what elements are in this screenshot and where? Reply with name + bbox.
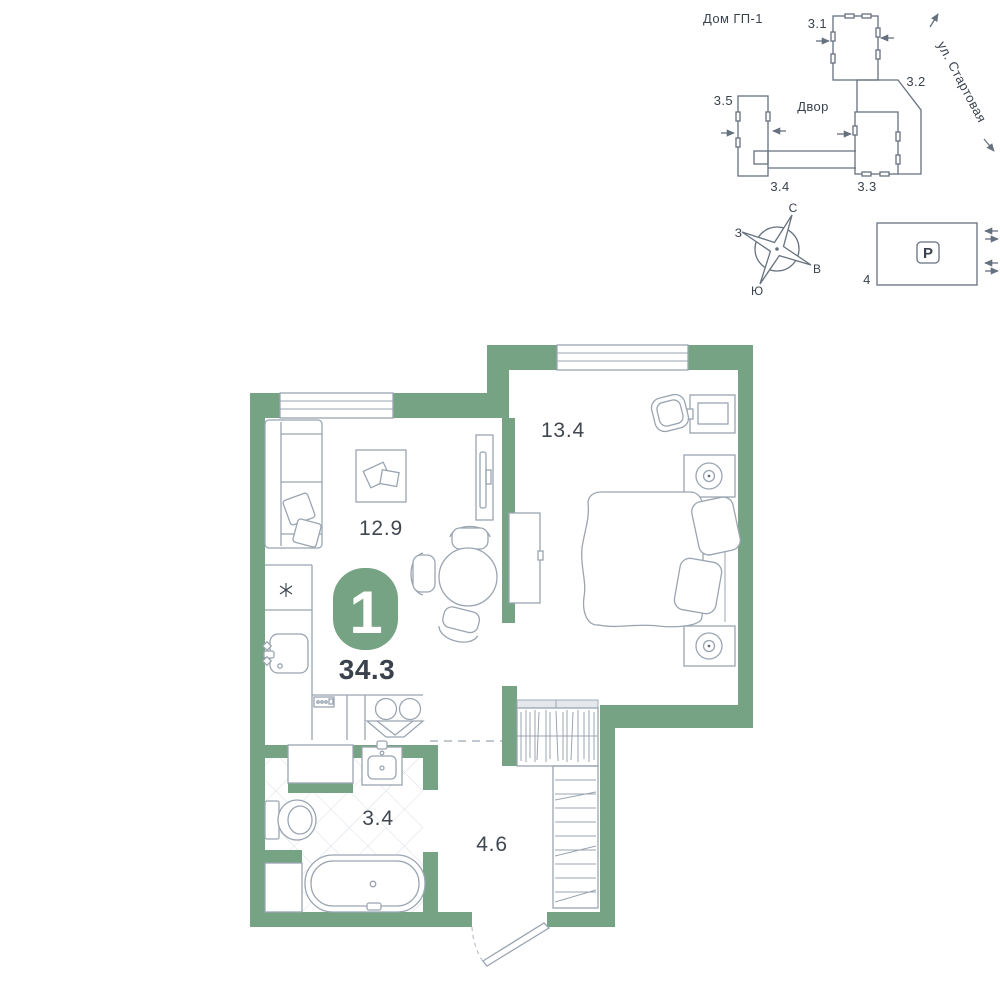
- building-3-2-label: 3.2: [906, 74, 925, 89]
- wall-bathroom-top-left: [265, 745, 288, 758]
- bedroom-window: [557, 345, 688, 370]
- rooms-count-number: 1: [349, 579, 382, 646]
- courtyard-label: Двор: [797, 99, 829, 114]
- building-3-4-label: 3.4: [770, 179, 789, 194]
- wall-bottom-left: [250, 912, 472, 927]
- building-3-1-label: 3.1: [808, 16, 827, 31]
- site-plan-title: Дом ГП-1: [703, 11, 763, 26]
- wall-living-hallway: [502, 686, 517, 766]
- living-window: [280, 393, 393, 418]
- hallway-area-label: 4.6: [476, 833, 508, 856]
- plan-canvas: Дом ГП-1 ул. Стартовая: [0, 0, 1000, 1000]
- street-direction-arrow-up: [930, 14, 938, 27]
- building-3-5-label: 3.5: [714, 93, 733, 108]
- site-plan: Дом ГП-1 ул. Стартовая: [703, 11, 994, 194]
- wall-left-outer: [250, 393, 265, 927]
- washer-niche: [288, 745, 353, 783]
- toilet: [265, 800, 316, 840]
- wardrobe-hangers: [517, 700, 598, 766]
- bathtub: [305, 855, 425, 912]
- corner-niche: [265, 863, 302, 912]
- parking-sign-letter: P: [923, 245, 933, 262]
- wall-bedroom-bottom: [600, 705, 753, 728]
- wardrobe-shelves: [553, 766, 598, 908]
- building-3-1-outline: [833, 16, 878, 80]
- street-direction-arrow-down: [984, 139, 994, 151]
- compass-rose: С Ю З В: [735, 201, 821, 298]
- living-kitchen-area-label: 12.9: [359, 517, 403, 540]
- desk-chair: [649, 392, 690, 433]
- rooms-count-badge: 1: [333, 568, 398, 650]
- door-leaf: [483, 923, 549, 966]
- fridge-snowflake-icon: [280, 583, 292, 597]
- bathroom-area-label: 3.4: [362, 807, 394, 830]
- compass-east-label: В: [813, 262, 821, 276]
- kitchen-sink: [263, 634, 308, 673]
- floor-plan: 12.9 13.4 3.4 4.6 1 34.3: [250, 345, 753, 966]
- building-3-3-label: 3.3: [857, 179, 876, 194]
- wall-bottom-right: [547, 912, 615, 927]
- building-3-2-outline: [857, 80, 921, 174]
- door-swing-arc: [472, 927, 483, 962]
- wall-bathroom-door-upper: [423, 745, 438, 790]
- dining-table-set: [411, 527, 497, 646]
- extractor-hood: [367, 721, 423, 737]
- coffee-table: [356, 450, 406, 502]
- tv-unit-living: [476, 435, 493, 520]
- tv-cabinet-bedroom: [509, 513, 543, 603]
- desk: [687, 395, 735, 433]
- parking-area: P 4: [863, 223, 998, 287]
- street-name-label: ул. Стартовая: [934, 39, 989, 125]
- stove: [376, 699, 421, 720]
- bed: [582, 492, 743, 627]
- bedroom-area-label: 13.4: [541, 419, 585, 442]
- parking-direction-arrows: [985, 231, 998, 271]
- sofa: [265, 420, 322, 548]
- entrance-door: [472, 923, 549, 966]
- parking-lot-number: 4: [863, 272, 871, 287]
- bathroom-sink: [362, 741, 402, 785]
- nightstand-top: [684, 455, 735, 497]
- entrance-arrows: [721, 38, 894, 134]
- building-3-3-outline: [855, 112, 898, 174]
- kitchen-counter-bottom: [312, 695, 423, 740]
- dining-table: [439, 548, 497, 606]
- total-area-label: 34.3: [339, 654, 396, 685]
- wall-corner-niche: [265, 850, 302, 863]
- nightstand-bottom: [684, 626, 735, 666]
- building-notches: [736, 14, 900, 176]
- compass-west-label: З: [735, 226, 742, 240]
- compass-north-label: С: [789, 201, 798, 215]
- wall-washer-niche: [288, 783, 353, 793]
- current-section-marker: [754, 151, 768, 164]
- bed-pillow-2: [673, 557, 723, 616]
- wall-hallway-right: [600, 705, 615, 927]
- floorplan-page: Дом ГП-1 ул. Стартовая: [0, 0, 1000, 1000]
- building-3-4-outline: [768, 151, 856, 168]
- compass-south-label: Ю: [751, 284, 763, 298]
